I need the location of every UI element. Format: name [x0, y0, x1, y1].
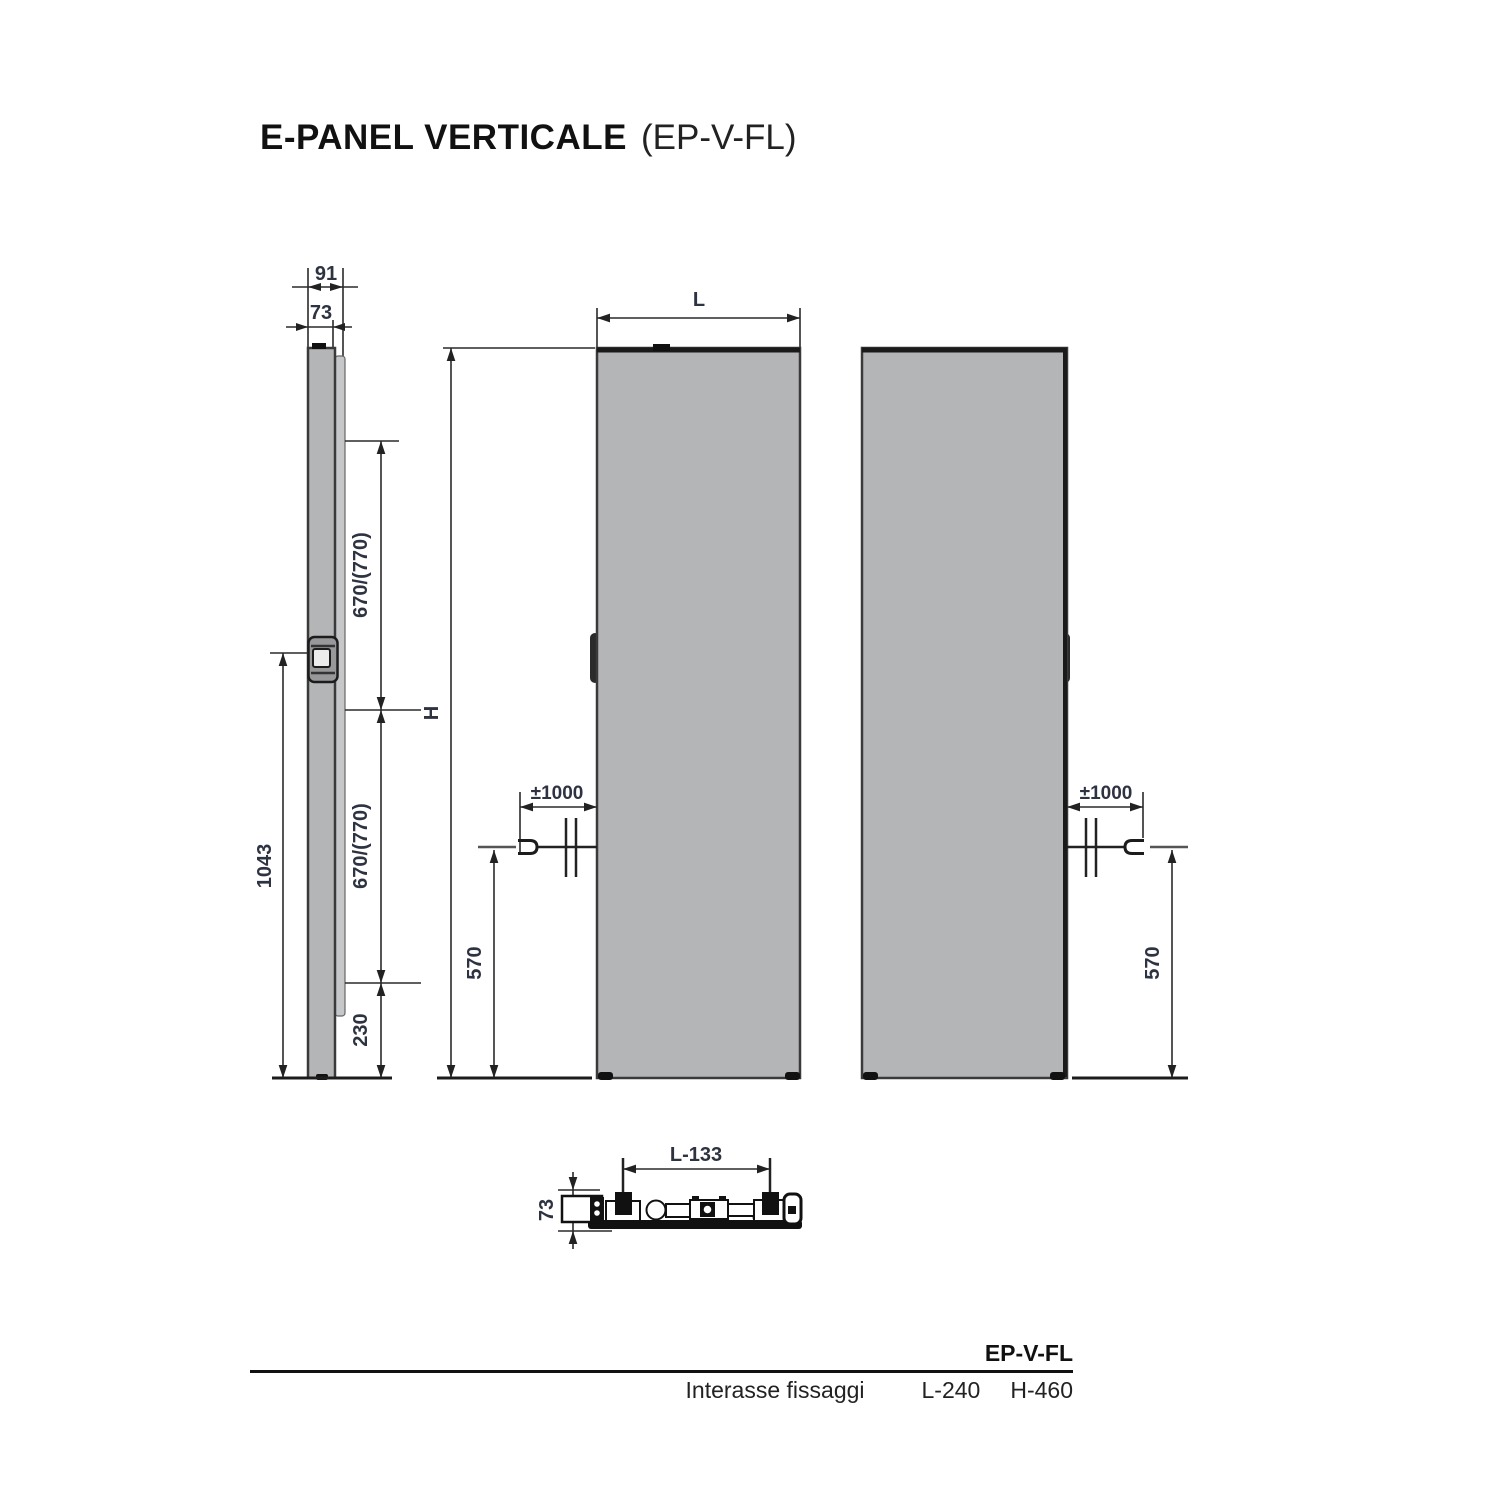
side-view: 91 73 — [254, 263, 421, 1080]
dim-label-670-upper: 670/(770) — [350, 532, 372, 618]
dim-label-73-section: 73 — [536, 1199, 558, 1221]
dim-label-670-lower: 670/(770) — [350, 803, 372, 889]
dim-label-73: 73 — [310, 302, 332, 324]
rear-view: ±1000 570 — [862, 348, 1188, 1080]
clip-hole — [594, 1201, 600, 1207]
power-cable-rear — [1067, 818, 1144, 877]
section-profile — [562, 1192, 802, 1229]
clip-hole — [594, 1210, 600, 1216]
dim-label-230: 230 — [350, 1013, 372, 1046]
dim-height-H: H — [421, 348, 595, 1078]
bottom-foot — [785, 1072, 800, 1080]
diagram-page: 91 73 — [0, 0, 1500, 1500]
plug-fork-icon — [518, 841, 537, 854]
spec-model: EP-V-FL — [250, 1340, 1073, 1370]
center-hole — [704, 1206, 712, 1214]
valve-body — [647, 1201, 666, 1220]
pin-head — [615, 1192, 632, 1215]
dim-cable-height-rear: 570 — [1142, 847, 1188, 1078]
dim-label-L: L — [693, 289, 705, 311]
spec-row: Interasse fissaggi L-240 H-460 — [250, 1373, 1073, 1404]
bottom-foot — [863, 1072, 878, 1080]
dim-label-H: H — [421, 706, 443, 720]
dim-label-570-rear: 570 — [1142, 946, 1164, 979]
technical-drawing: 91 73 — [0, 0, 1500, 1500]
bottom-foot — [1050, 1072, 1065, 1080]
dim-control-height: 1043 — [254, 653, 308, 1078]
panel-rear — [862, 348, 1067, 1078]
connector-block — [728, 1204, 754, 1216]
connector-block — [666, 1204, 692, 1217]
plug-fork-icon — [1125, 841, 1144, 854]
dim-lower-span: 670/(770) — [350, 710, 381, 983]
dim-label-1043: 1043 — [254, 844, 276, 889]
dim-label-L-133: L-133 — [670, 1144, 722, 1166]
front-view: L H ±1000 — [421, 289, 800, 1080]
dim-label-cable-front: ±1000 — [531, 783, 584, 804]
dim-width-L: L — [597, 289, 800, 318]
wall-bracket-profile — [335, 356, 345, 1016]
spec-table: EP-V-FL Interasse fissaggi L-240 H-460 — [250, 1340, 1073, 1404]
panel-front — [597, 348, 800, 1078]
dim-cable-height-front: 570 — [464, 847, 516, 1078]
spec-l-value: L-240 — [922, 1377, 981, 1404]
title-code: (EP-V-FL) — [641, 118, 797, 158]
power-cable-front — [518, 818, 597, 877]
panel-side-profile — [308, 348, 335, 1078]
dim-depth-total: 91 — [292, 263, 358, 291]
top-vent — [653, 344, 670, 351]
spring-clip — [590, 1197, 604, 1221]
dim-label-91: 91 — [315, 263, 337, 285]
title-main: E-PANEL VERTICALE — [260, 118, 627, 158]
end-cap-detail — [788, 1206, 796, 1214]
dim-bottom-offset: 230 — [350, 983, 381, 1078]
section-view: L-133 73 — [536, 1144, 802, 1249]
dim-upper-span: 670/(770) — [350, 441, 381, 710]
dim-fixing-span: L-133 — [623, 1144, 770, 1169]
control-box — [309, 637, 338, 682]
pin-head — [762, 1192, 779, 1215]
spec-h-value: H-460 — [1010, 1377, 1073, 1404]
dim-cable-length-rear: ±1000 — [1067, 783, 1143, 838]
spec-row-label: Interasse fissaggi — [686, 1377, 865, 1404]
page-title: E-PANEL VERTICALE (EP-V-FL) — [260, 118, 797, 158]
dim-label-570-front: 570 — [464, 946, 486, 979]
dim-label-cable-rear: ±1000 — [1080, 783, 1133, 804]
top-cap — [312, 343, 326, 349]
bottom-foot — [598, 1072, 613, 1080]
